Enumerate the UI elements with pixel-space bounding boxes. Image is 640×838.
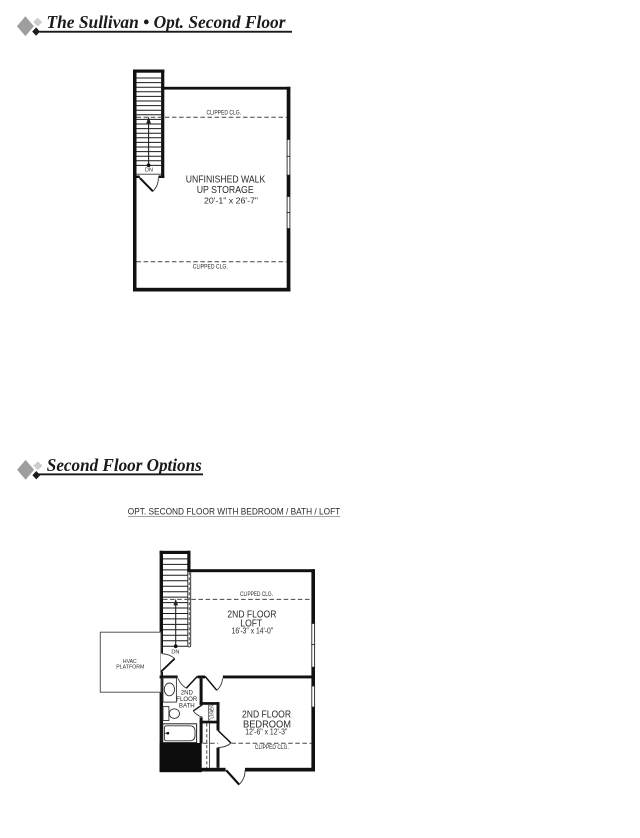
svg-text:16'-3" x 14'-0": 16'-3" x 14'-0" [232,626,274,635]
svg-text:12'-6" x 12'-3": 12'-6" x 12'-3" [245,727,287,736]
svg-text:CLIPPED CLG.: CLIPPED CLG. [207,111,242,117]
svg-text:DN: DN [145,168,153,174]
svg-text:CLIPPED CLG.: CLIPPED CLG. [193,265,228,271]
svg-text:UP STORAGE: UP STORAGE [197,184,254,196]
svg-text:CLIPPED CLG.: CLIPPED CLG. [255,745,289,751]
svg-text:OPT. SECOND FLOOR WITH BEDROOM: OPT. SECOND FLOOR WITH BEDROOM / BATH / … [128,506,341,517]
svg-text:Second Floor Options: Second Floor Options [47,455,202,475]
svg-text:PLATFORM: PLATFORM [116,665,144,671]
svg-text:CLIPPED CLG.: CLIPPED CLG. [240,592,273,598]
svg-text:BATH: BATH [179,703,195,710]
svg-text:DN: DN [171,649,179,655]
svg-text:LINEN: LINEN [210,704,216,719]
svg-text:The Sullivan • Opt. Second Flo: The Sullivan • Opt. Second Floor [47,12,287,32]
svg-text:20'-1" x 26'-7": 20'-1" x 26'-7" [204,196,258,205]
